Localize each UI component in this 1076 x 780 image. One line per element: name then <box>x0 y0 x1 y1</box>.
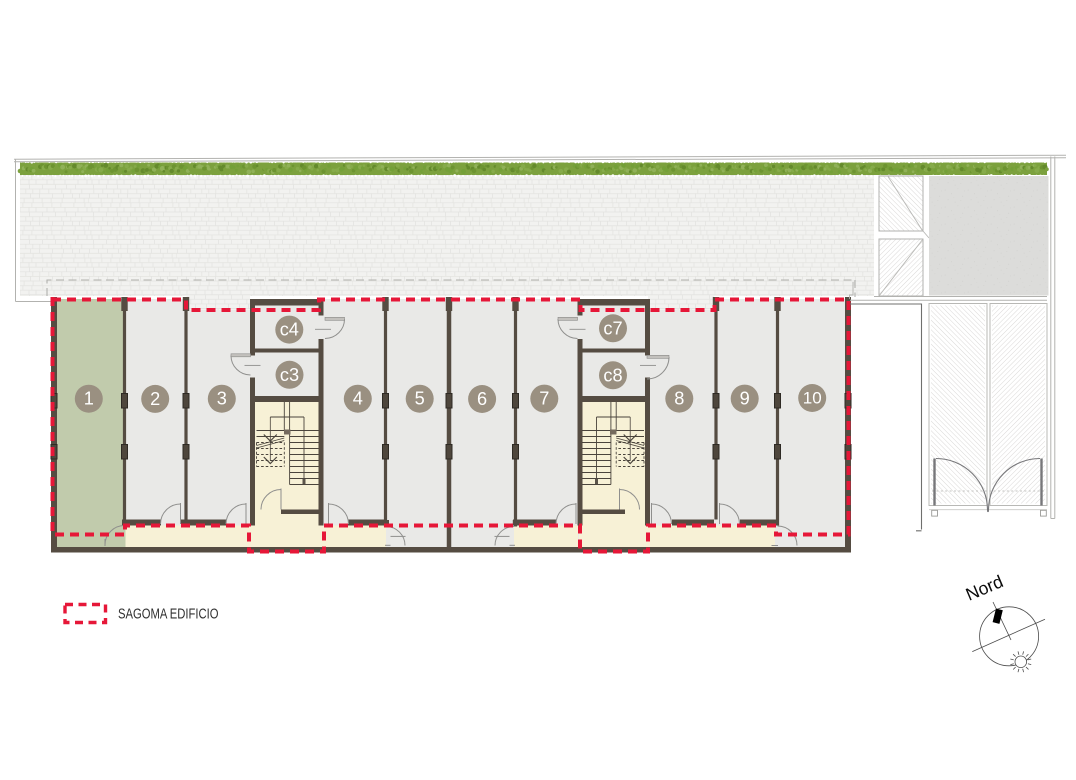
svg-text:9: 9 <box>740 389 750 409</box>
svg-text:10: 10 <box>803 389 822 408</box>
svg-text:7: 7 <box>539 389 549 409</box>
svg-text:4: 4 <box>353 389 363 409</box>
svg-text:6: 6 <box>477 389 487 409</box>
svg-text:c7: c7 <box>603 318 622 338</box>
svg-text:5: 5 <box>415 389 425 409</box>
svg-text:c3: c3 <box>280 365 299 385</box>
svg-text:8: 8 <box>674 389 684 409</box>
svg-text:c4: c4 <box>280 320 299 340</box>
svg-text:c8: c8 <box>603 365 622 385</box>
svg-text:SAGOMA EDIFICIO: SAGOMA EDIFICIO <box>118 606 219 622</box>
svg-text:2: 2 <box>150 389 160 409</box>
svg-text:1: 1 <box>84 389 94 409</box>
svg-text:3: 3 <box>217 389 227 409</box>
